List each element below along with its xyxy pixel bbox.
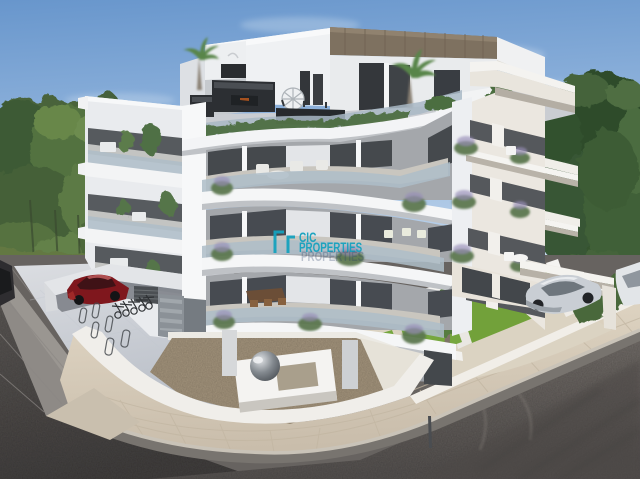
svg-text:PROPERTIES: PROPERTIES	[301, 248, 364, 264]
